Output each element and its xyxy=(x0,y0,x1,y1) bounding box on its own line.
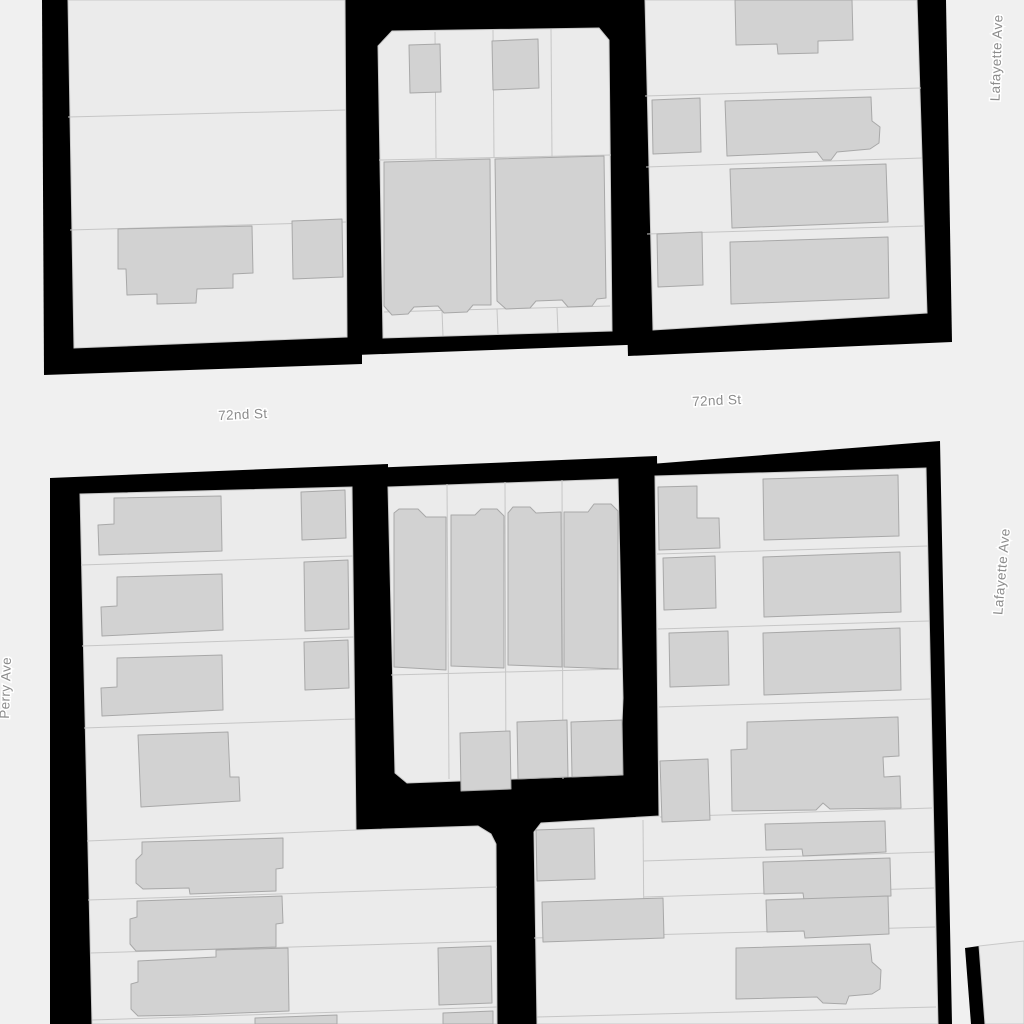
street-label-72nd-st-west: 72nd St xyxy=(218,406,268,423)
block-north-middle-building-3 xyxy=(495,156,606,309)
block-center-small-building-2 xyxy=(508,507,562,667)
block-southeast-building-13 xyxy=(736,944,881,1004)
block-southwest-building-3 xyxy=(304,560,349,631)
block-southwest-building-7 xyxy=(136,838,283,894)
block-southwest-building-1 xyxy=(301,490,346,540)
block-center-small-building-4 xyxy=(460,731,511,791)
block-southeast-building-8 xyxy=(536,828,595,881)
block-center-small-building-6 xyxy=(571,720,623,777)
block-east-of-lafayette-corner-parcels xyxy=(979,941,1024,1024)
block-center-small-building-1 xyxy=(451,509,504,668)
block-southwest-building-6 xyxy=(138,732,240,807)
block-northeast-building-4 xyxy=(657,232,703,287)
block-southeast-building-12 xyxy=(542,898,664,942)
block-southeast-building-2 xyxy=(663,556,716,610)
block-northeast-building-1 xyxy=(652,98,701,154)
block-southeast-building-7 xyxy=(660,759,710,822)
block-southwest-building-4 xyxy=(101,655,223,716)
block-center-small-building-0 xyxy=(394,509,446,670)
block-northwest-parcels xyxy=(68,0,347,348)
block-southeast-building-3 xyxy=(763,552,901,617)
block-southwest-building-5 xyxy=(304,640,349,690)
block-southeast-building-11 xyxy=(766,896,889,938)
street-label-lafayette-ave-north: Lafayette Ave xyxy=(987,14,1005,101)
block-north-middle-building-1 xyxy=(492,39,539,90)
block-southeast-building-4 xyxy=(669,631,729,687)
block-southwest-building-10 xyxy=(438,946,492,1005)
block-northwest-building-1 xyxy=(292,219,343,279)
block-northeast-building-3 xyxy=(730,164,888,228)
map-viewport[interactable]: 72nd St72nd StLafayette AveLafayette Ave… xyxy=(0,0,1024,1024)
block-southwest-building-12 xyxy=(443,1011,493,1024)
block-southwest-building-0 xyxy=(98,496,222,555)
block-southwest-building-2 xyxy=(101,574,223,636)
street-label-perry-ave: Perry Ave xyxy=(0,657,14,719)
block-southeast-building-5 xyxy=(763,628,901,695)
block-center-small-building-5 xyxy=(517,720,568,779)
parcel-map[interactable]: 72nd St72nd StLafayette AveLafayette Ave… xyxy=(0,0,1024,1024)
block-northeast-building-5 xyxy=(730,237,889,304)
block-north-middle-building-2 xyxy=(384,159,491,315)
block-southwest-building-8 xyxy=(130,896,283,951)
block-north-middle-building-0 xyxy=(409,44,441,93)
block-southeast-building-1 xyxy=(763,475,899,540)
street-label-72nd-st-east: 72nd St xyxy=(692,392,742,409)
block-southeast-building-6 xyxy=(731,717,901,811)
block-northeast-building-2 xyxy=(725,97,880,160)
block-center-small-building-3 xyxy=(564,504,618,669)
block-southeast-building-10 xyxy=(763,858,891,900)
